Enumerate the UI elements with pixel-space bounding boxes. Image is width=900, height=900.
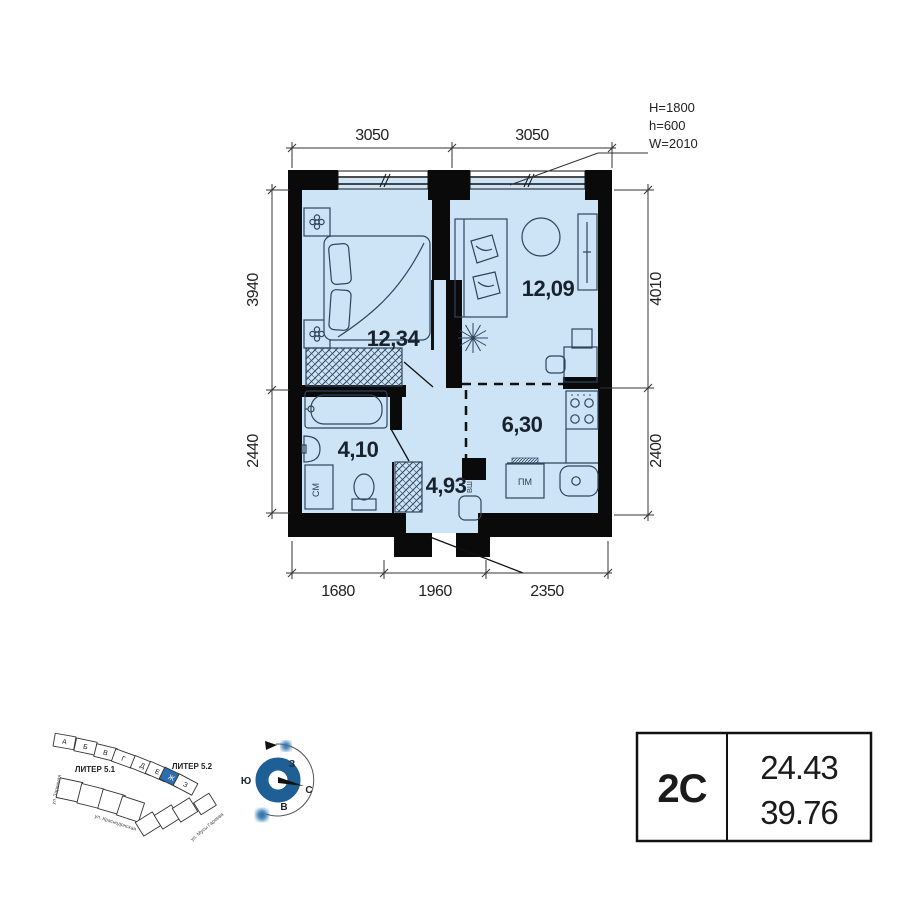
bedroom-wardrobe — [306, 348, 402, 386]
wall-right — [598, 170, 612, 537]
dim-left-2: 2440 — [245, 434, 262, 468]
plan-type-value: 2С — [657, 767, 706, 811]
info-table: 2С 24.43 39.76 — [637, 733, 871, 841]
living-area-value: 24.43 — [760, 749, 838, 786]
living-area-label: 12,09 — [522, 276, 575, 301]
compass-north: С — [305, 785, 312, 796]
sun-icon — [281, 741, 291, 751]
dim-top-2: 3050 — [515, 127, 549, 144]
double-bed — [324, 236, 430, 340]
pillow — [328, 243, 351, 285]
wall-living-hall — [446, 280, 462, 388]
liter-1-label: ЛИТЕР 5.1 — [75, 765, 116, 774]
bedroom-area-label: 12,34 — [367, 326, 421, 351]
dim-right-2: 2400 — [648, 434, 665, 468]
window-spec-2: h=600 — [649, 118, 686, 133]
total-area-value: 39.76 — [760, 794, 838, 831]
hall-area-label: 4,93 — [426, 473, 467, 498]
window-spec-3: W=2010 — [649, 136, 698, 151]
kitchen-area-label: 6,30 — [502, 412, 543, 437]
dim-bottom-3: 2350 — [530, 583, 564, 600]
compass-south: Ю — [241, 776, 251, 787]
compass-east: В — [280, 802, 287, 813]
wall-bath-hall — [390, 390, 402, 430]
dishwasher-label: ПМ — [518, 477, 532, 487]
street-right-label: ул. Мусы Гареева — [190, 812, 226, 843]
compass: З Ю С В — [241, 741, 314, 821]
dim-top-1: 3050 — [355, 127, 389, 144]
liter-2-label: ЛИТЕР 5.2 — [172, 762, 213, 771]
dim-left-1: 3940 — [245, 273, 262, 307]
washer-label: СМ — [311, 483, 321, 497]
window-spec-1: H=1800 — [649, 100, 695, 115]
wall-entry-left — [394, 533, 432, 557]
wall-bottom-kitchen — [486, 513, 612, 537]
dim-bottom-1: 1680 — [321, 583, 355, 600]
compass-west: З — [289, 759, 295, 770]
dim-bottom-2: 1960 — [418, 583, 452, 600]
site-plan: А Б В Г Д Е Ж З ЛИТЕР 5.1 ЛИТЕР 5.2 ул. … — [51, 733, 225, 842]
sun-icon — [256, 809, 268, 821]
pillow — [329, 289, 352, 330]
wall-bedroom-living — [432, 190, 450, 280]
wall-left — [288, 170, 302, 537]
page: ПМ СМ ВШ 12,34 — [0, 0, 900, 900]
arc-arrowhead-icon — [265, 741, 277, 750]
hall-recess-floor — [400, 510, 486, 533]
wall-bottom-bath — [288, 513, 398, 537]
wall-stub-kitchen-living — [563, 377, 598, 389]
apartment-plan-drawing: ПМ СМ ВШ 12,34 — [0, 0, 900, 900]
bathroom-area-label: 4,10 — [338, 437, 379, 462]
counter-strip — [512, 458, 538, 463]
hall-wardrobe — [395, 462, 422, 512]
dim-right-1: 4010 — [648, 272, 665, 306]
